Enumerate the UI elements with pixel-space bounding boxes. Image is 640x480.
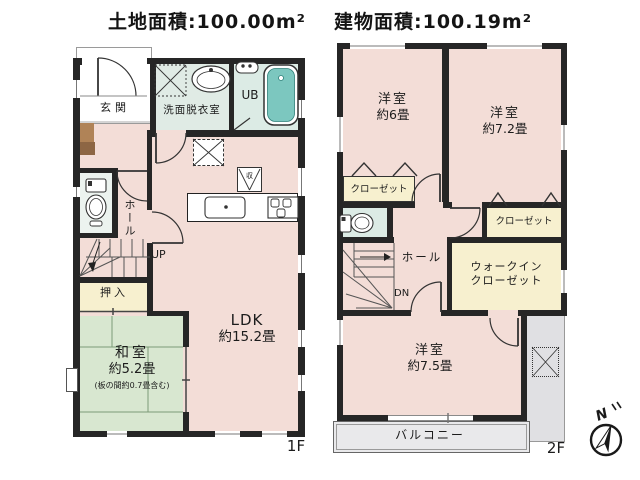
wall bbox=[150, 58, 156, 135]
bedroom75-area-label: 約7.5畳 bbox=[370, 359, 490, 374]
oshiire-label: 押入 bbox=[84, 287, 144, 300]
window bbox=[487, 43, 542, 49]
window bbox=[262, 431, 287, 437]
floor-plan-canvas: 土地面積:100.00m² 建物面積:100.19m² bbox=[0, 0, 640, 480]
wall bbox=[447, 238, 452, 310]
room-toilet-1f bbox=[80, 173, 112, 233]
building-area-text: 建物面積:100.19m² bbox=[334, 7, 532, 34]
floor1-label: 1F bbox=[278, 438, 314, 456]
balcony-label: バルコニー bbox=[378, 428, 482, 442]
window bbox=[561, 125, 567, 150]
closet-right-label: クローゼット bbox=[487, 216, 561, 227]
wall bbox=[147, 58, 305, 64]
wall bbox=[183, 412, 189, 437]
closet-left-label: クローゼット bbox=[343, 184, 415, 195]
wall bbox=[186, 130, 298, 137]
window bbox=[73, 80, 80, 98]
wall bbox=[337, 202, 415, 208]
up-label: UP bbox=[151, 249, 179, 262]
wall bbox=[518, 310, 567, 316]
compass-icon: N bbox=[591, 402, 621, 455]
washitsu-area-label: 約5.2畳 bbox=[78, 362, 186, 377]
compass-north-label: N bbox=[594, 405, 611, 424]
bedroom75-name-label: 洋室 bbox=[370, 343, 490, 358]
window bbox=[73, 187, 80, 197]
bedroom6-name-label: 洋室 bbox=[343, 92, 443, 107]
wall bbox=[443, 202, 452, 208]
floor-storage-label: 収 bbox=[237, 172, 262, 180]
walkin-line1-label: ウォークイン bbox=[452, 261, 561, 274]
wall bbox=[76, 233, 118, 238]
wall bbox=[337, 237, 394, 243]
window bbox=[298, 100, 305, 118]
roof-hatch-mark bbox=[532, 347, 559, 377]
dn-label: DN bbox=[394, 288, 420, 300]
wall bbox=[337, 415, 388, 421]
wall bbox=[521, 316, 527, 421]
bedroom6-area-label: 約6畳 bbox=[343, 108, 443, 123]
hall1f-label: ホール bbox=[122, 196, 135, 240]
window bbox=[337, 320, 343, 345]
balcony-sliding-door bbox=[388, 415, 473, 421]
window bbox=[350, 43, 405, 49]
bedroom72-name-label: 洋室 bbox=[452, 106, 558, 121]
room-washroom bbox=[156, 63, 229, 130]
washroom-label: 洗面脱衣室 bbox=[153, 104, 231, 116]
hall2f-label: ホール bbox=[396, 251, 448, 265]
window bbox=[298, 255, 305, 273]
wall bbox=[337, 310, 411, 316]
wall bbox=[147, 137, 152, 210]
wall bbox=[473, 415, 527, 421]
ldk-area-label: 約15.2畳 bbox=[187, 330, 307, 346]
bedroom72-area-label: 約7.2畳 bbox=[452, 122, 558, 137]
window bbox=[298, 375, 305, 391]
entrance-label: 玄関 bbox=[88, 102, 142, 115]
wall bbox=[147, 130, 156, 137]
wall bbox=[76, 277, 153, 283]
kitchen-counter bbox=[187, 193, 298, 222]
wall bbox=[112, 168, 118, 238]
wall bbox=[482, 202, 567, 208]
window bbox=[107, 431, 127, 437]
window bbox=[298, 168, 305, 196]
land-area-text: 土地面積:100.00m² bbox=[108, 7, 306, 34]
ldk-name-label: LDK bbox=[187, 312, 307, 330]
washitsu-note-label: (板の間約0.7畳含む) bbox=[70, 381, 194, 390]
bath-label: UB bbox=[236, 88, 264, 102]
room-toilet-2f bbox=[343, 208, 387, 237]
window bbox=[215, 431, 240, 437]
floor2-label: 2F bbox=[538, 440, 574, 458]
wall bbox=[447, 237, 567, 243]
walkin-line2-label: クローゼット bbox=[452, 275, 561, 288]
washitsu-name-label: 和室 bbox=[78, 345, 186, 362]
wall bbox=[442, 48, 449, 202]
wall bbox=[229, 63, 234, 135]
refrigerator-space bbox=[193, 139, 224, 166]
wall bbox=[447, 310, 488, 316]
area-header: 土地面積:100.00m² 建物面積:100.19m² bbox=[0, 7, 640, 34]
window bbox=[561, 270, 567, 293]
